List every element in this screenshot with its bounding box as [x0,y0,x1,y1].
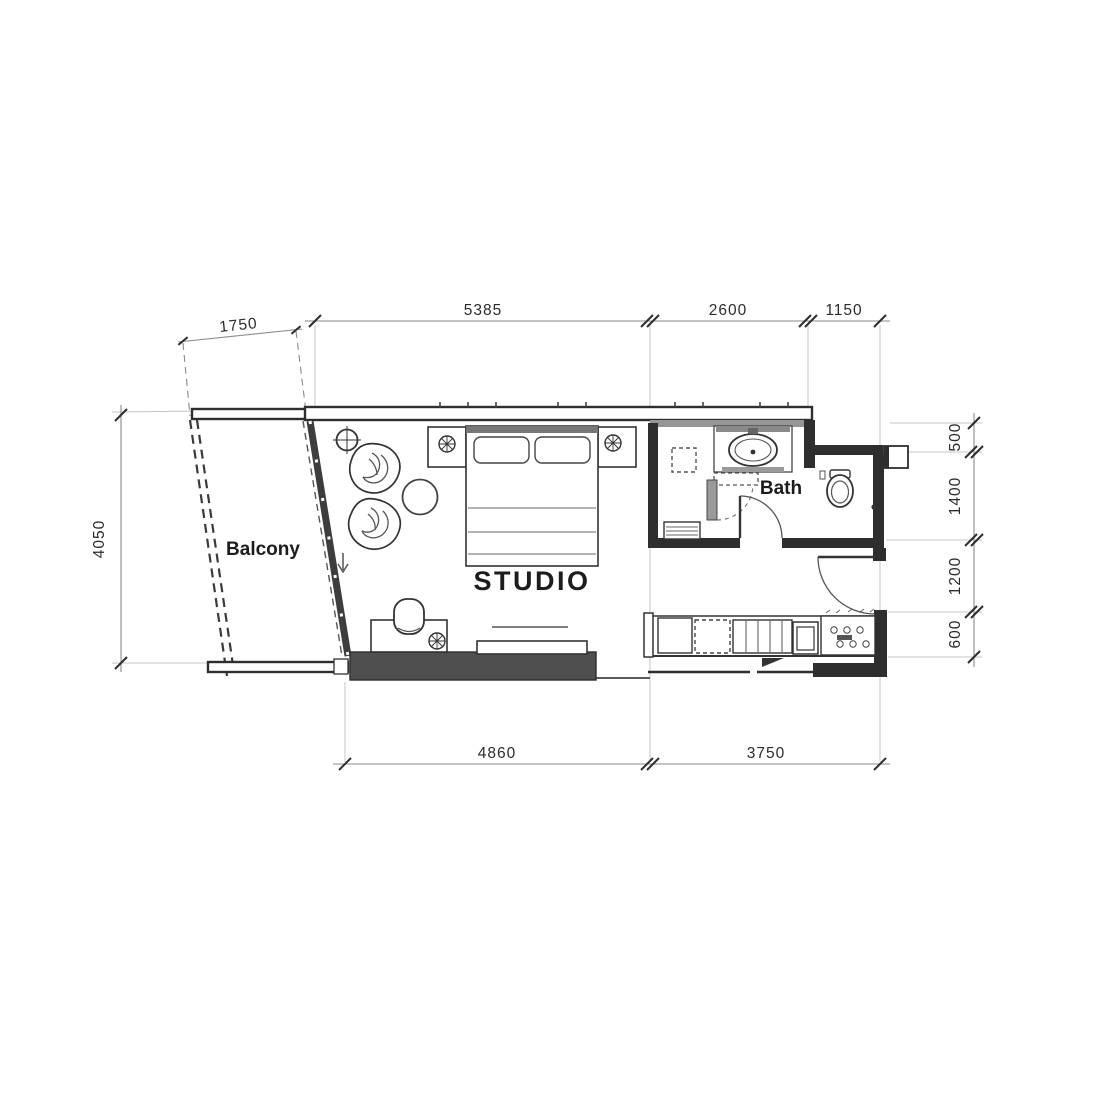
fridge [658,618,692,653]
bathroom: Bath [664,426,802,539]
right-exterior-wall-upper [873,455,884,548]
dim-top-5385: 5385 [464,302,502,319]
bath-bench [664,522,700,539]
armchair [349,499,401,549]
kitchen-sink [793,622,818,654]
studio-furniture: STUDIO [333,426,636,652]
toilet [820,470,853,507]
entry-jamb-wall [873,548,886,561]
studio-bath-wall [648,423,658,540]
dim-bottom-3750: 3750 [747,745,785,762]
door-stop [871,504,876,509]
bottom-right-wall [813,663,887,677]
nightstand [598,427,636,467]
armchair [350,444,400,493]
floor-plan-canvas: 5385 2600 1150 1750 4050 500 1400 1200 6… [0,0,1100,1100]
pillow [535,437,590,463]
kitchenette [644,609,877,657]
room-label-studio: STUDIO [473,566,590,596]
vanity-sink [714,426,792,472]
balcony-bottom-wall [208,662,348,672]
wc-top-wall [813,445,883,455]
floor-plan-drawing: 5385 2600 1150 1750 4050 500 1400 1200 6… [0,0,1100,1100]
dimension-left: 4050 [91,405,127,672]
pillow [474,437,529,463]
dim-top-2600: 2600 [709,302,747,319]
bath-wc-wall [804,420,815,468]
dim-right-1400: 1400 [947,477,964,515]
top-exterior-wall [305,407,812,420]
dishwasher [695,620,730,653]
dim-right-500: 500 [947,423,964,452]
dim-left-4050: 4050 [91,520,108,558]
desk [371,599,447,652]
nightstand [428,427,466,467]
room-label-bath: Bath [760,478,802,499]
dim-top-1150: 1150 [825,302,862,319]
tv-console [477,641,587,654]
dimension-top: 5385 2600 1150 [305,302,890,327]
dim-bottom-4860: 4860 [478,745,516,762]
shower-screen [707,473,758,520]
cooktop [821,609,875,655]
balcony-sliding-door [303,421,348,674]
plant-icon [605,435,621,451]
wc-room [820,470,877,510]
plant-icon [429,633,445,649]
bath-door [740,496,782,538]
base-cabinets [733,620,792,653]
service-duct [884,446,908,468]
dimension-bottom: 4860 3750 [333,745,890,770]
sliding-direction-arrow [338,553,348,572]
dim-top-1750: 1750 [219,315,259,336]
shower-drain [672,448,696,472]
balcony-top-wall [192,409,307,419]
threshold-marker [762,658,784,667]
entry-door [818,557,875,614]
bed [466,426,598,566]
side-table [403,480,438,515]
dim-right-1200: 1200 [947,557,964,595]
dimension-balcony-width: 1750 [178,315,306,416]
dim-right-600: 600 [947,620,964,649]
wc-bottom-wall [782,538,883,548]
plant-icon [439,436,455,452]
room-label-balcony: Balcony [226,539,300,560]
